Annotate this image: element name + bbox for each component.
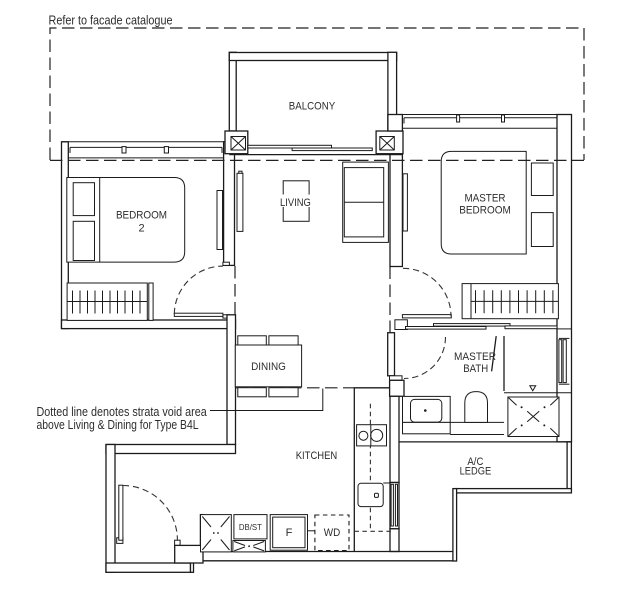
svg-text:BEDROOM: BEDROOM (459, 204, 511, 216)
svg-text:BATH: BATH (463, 363, 488, 375)
svg-text:KITCHEN: KITCHEN (296, 450, 338, 462)
svg-text:F: F (286, 527, 293, 539)
svg-text:2: 2 (138, 222, 144, 234)
svg-text:BALCONY: BALCONY (289, 101, 336, 113)
svg-text:DINING: DINING (251, 361, 286, 373)
svg-text:MASTER: MASTER (454, 351, 496, 363)
svg-text:BEDROOM: BEDROOM (116, 209, 167, 221)
svg-text:above Living & Dining for Type: above Living & Dining for Type B4L (37, 417, 199, 432)
svg-text:Refer to facade catalogue: Refer to facade catalogue (49, 13, 173, 28)
svg-text:MASTER: MASTER (464, 193, 505, 205)
svg-text:LIVING: LIVING (280, 197, 311, 209)
svg-text:DB/ST: DB/ST (239, 522, 262, 532)
svg-text:WD: WD (324, 527, 341, 539)
svg-text:LEDGE: LEDGE (460, 465, 492, 477)
